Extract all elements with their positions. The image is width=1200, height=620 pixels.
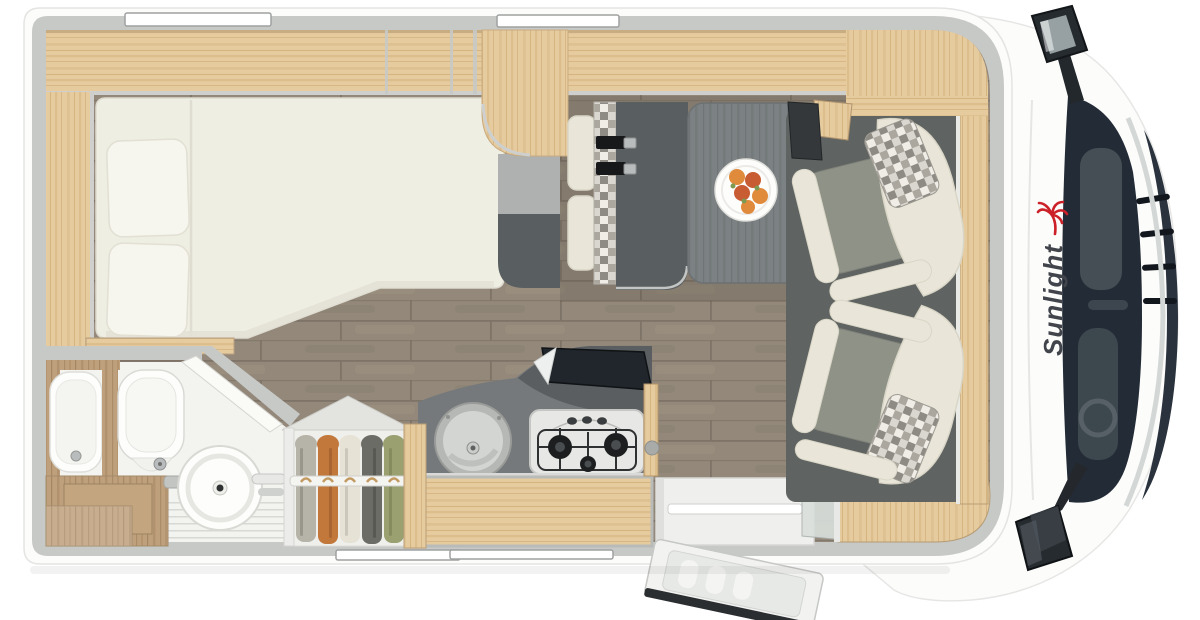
sunlight-logo-text: Sunlight [1038,244,1068,356]
stove-knobs [567,416,607,425]
burner-small-cap [585,461,592,468]
ground-shadow [30,566,950,574]
overhead-cab-corner [846,30,988,96]
bed-pillow-top [106,139,189,238]
bench-table-slab [616,102,688,290]
fruit-plate [715,159,777,221]
basin-drain [71,451,81,461]
partition-gray-panel [498,154,560,220]
bench-cushion-top [568,116,596,190]
bathroom-top-wall [32,346,202,360]
entry-step-strip [668,504,802,514]
gas-stove [530,410,644,474]
window-top-left [125,13,271,26]
garment [361,435,383,544]
shower-fixture-bar2 [258,488,284,496]
belt-strap [596,136,626,149]
window-top-mid [497,15,619,27]
kitchen-sink [435,403,511,479]
overhead-top-shadow [46,30,862,33]
left-wood-column [46,92,92,354]
seatbelt-bottom [596,162,636,175]
hanging-clothes [295,435,405,544]
wardrobe-right-wood-panel [404,424,426,548]
kitchen-side-panel [644,384,658,476]
sink-screw [446,415,450,419]
bathroom-vanity [46,476,168,546]
basin-wood-divider [102,366,118,478]
cab-trim-top [846,96,988,116]
toilet-lid-inner [126,378,176,452]
left-column-edge [90,92,94,354]
floorplan-canvas: Sunlight [0,0,1200,620]
motorhome-floorplan: Sunlight [0,0,1200,620]
sink-drain-dot [471,446,476,451]
tv-panel [788,102,822,160]
vanity-shelf-highlight [46,506,132,546]
dinette [568,102,800,290]
faucet-knob [645,441,659,455]
burner-right-cap [611,440,621,450]
wardrobe-left-wall [284,428,294,546]
seatbelt-top [596,136,636,149]
window-bottom-mid [450,550,613,559]
belt-buckle [624,138,636,148]
bed-pillow-bottom [106,243,189,338]
partition-dark-slab [498,214,560,288]
cab-trim-vertical [960,108,988,504]
sink-screw [497,416,501,420]
burner-left-cap [555,442,565,452]
garment [383,435,405,543]
cab-seating-area [783,96,988,504]
toilet [118,370,184,471]
window-bottom-left [336,550,460,560]
cab-trim-inner-edge [956,108,960,504]
entry-step-shade [656,478,664,545]
garment [339,435,361,543]
bench-backrest-checkered [594,102,616,284]
belt-strap [596,162,626,175]
garment [317,435,339,544]
washbasin [50,372,102,472]
round-basin-dot [217,485,224,492]
curved-wood-unit [482,30,568,156]
overhead-bottom-edge [46,91,862,95]
bench-cushion-bottom [568,196,596,270]
garment [295,435,317,542]
toilet-flush-dot [158,462,162,466]
shower-fixture-bar [252,474,286,484]
belt-buckle [624,164,636,174]
kitchen-cabinet-face [406,477,652,546]
overhead-band [46,30,862,94]
